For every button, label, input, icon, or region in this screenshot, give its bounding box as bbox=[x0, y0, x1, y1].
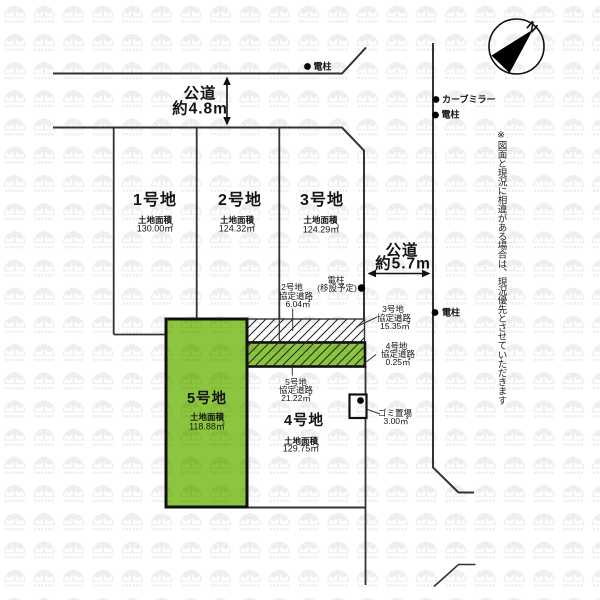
pole-east-mid-label: 電柱 bbox=[442, 309, 460, 318]
disclaimer-note: ※図面と現況に相違がある場合は、現況優先とさせていただきます bbox=[496, 130, 506, 405]
parcel-2-area-caption: 土地面積 bbox=[220, 215, 254, 224]
parcel-4-area-value: 129.75㎡ bbox=[283, 444, 320, 453]
agreement-road-3-area: 15.35㎡ bbox=[380, 321, 410, 330]
parcel-3-area-caption: 土地面積 bbox=[303, 216, 337, 225]
parcel-5-area-value: 118.88㎡ bbox=[189, 422, 225, 431]
parcel-2-area-value: 124.32㎡ bbox=[219, 225, 256, 234]
curve-mirror-label: カーブミラー bbox=[442, 96, 495, 105]
parcel-1-label: 1号地 bbox=[133, 193, 177, 209]
east-road-width: 約5.7m bbox=[375, 256, 431, 272]
parcel-1-area-caption: 土地面積 bbox=[138, 215, 172, 224]
north-label: N bbox=[524, 19, 540, 36]
pole-top-label: 電柱 bbox=[314, 63, 332, 72]
parcel-3-label: 3号地 bbox=[300, 193, 344, 209]
trash-area-value: 3.00㎡ bbox=[383, 416, 408, 425]
agreement-road-4-area: 0.25㎡ bbox=[385, 358, 410, 367]
pole-relocation-note: (移設予定) bbox=[317, 284, 357, 293]
parcel-5-area-caption: 土地面積 bbox=[190, 413, 224, 422]
agreement-road-2-area: 6.04㎡ bbox=[285, 299, 310, 308]
parcel-1-area-value: 130.00㎡ bbox=[137, 225, 174, 234]
pole-east-upper-label: 電柱 bbox=[442, 111, 460, 120]
label-layer: 電柱 公道 約4.8m 公道 約5.7m カーブミラー 電柱 電柱 1号地 土地… bbox=[0, 0, 600, 600]
agreement-road-5-area: 21.22㎡ bbox=[281, 393, 311, 402]
parcel-5-label: 5号地 bbox=[187, 391, 227, 406]
parcel-2-label: 2号地 bbox=[218, 193, 262, 209]
top-road-width: 約4.8m bbox=[172, 101, 228, 117]
parcel-4-label: 4号地 bbox=[284, 413, 324, 428]
parcel-3-area-value: 124.29㎡ bbox=[303, 225, 340, 234]
land-plot-diagram: 電柱 公道 約4.8m 公道 約5.7m カーブミラー 電柱 電柱 1号地 土地… bbox=[0, 0, 600, 600]
